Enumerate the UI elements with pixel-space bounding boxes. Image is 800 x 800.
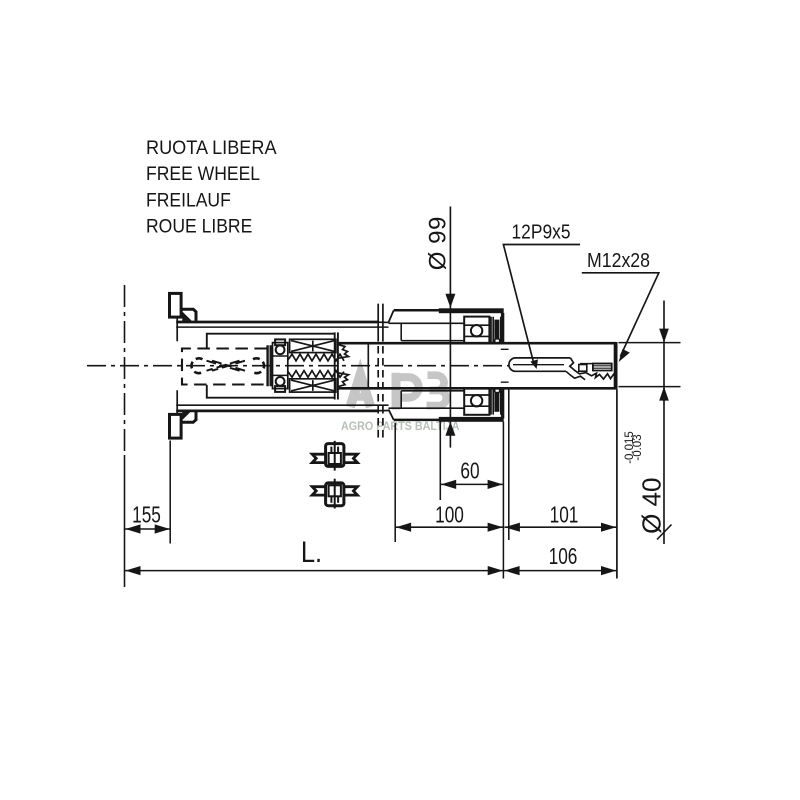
svg-text:106: 106 (549, 545, 578, 570)
svg-text:L.: L. (301, 535, 322, 568)
svg-text:Ø 40: Ø 40 (637, 478, 667, 534)
svg-text:FREE WHEEL: FREE WHEEL (146, 162, 260, 184)
svg-text:FREILAUF: FREILAUF (146, 188, 231, 210)
svg-text:ROUE LIBRE: ROUE LIBRE (146, 215, 252, 237)
svg-text:101: 101 (550, 503, 579, 528)
svg-text:Ø 99: Ø 99 (424, 216, 451, 270)
svg-text:-0.03: -0.03 (632, 434, 644, 460)
svg-text:12P9x5: 12P9x5 (512, 220, 571, 242)
svg-text:RUOTA LIBERA: RUOTA LIBERA (146, 136, 277, 158)
svg-text:155: 155 (132, 503, 161, 528)
svg-text:60: 60 (460, 459, 479, 484)
svg-text:M12x28: M12x28 (587, 250, 650, 272)
svg-text:100: 100 (435, 503, 464, 528)
